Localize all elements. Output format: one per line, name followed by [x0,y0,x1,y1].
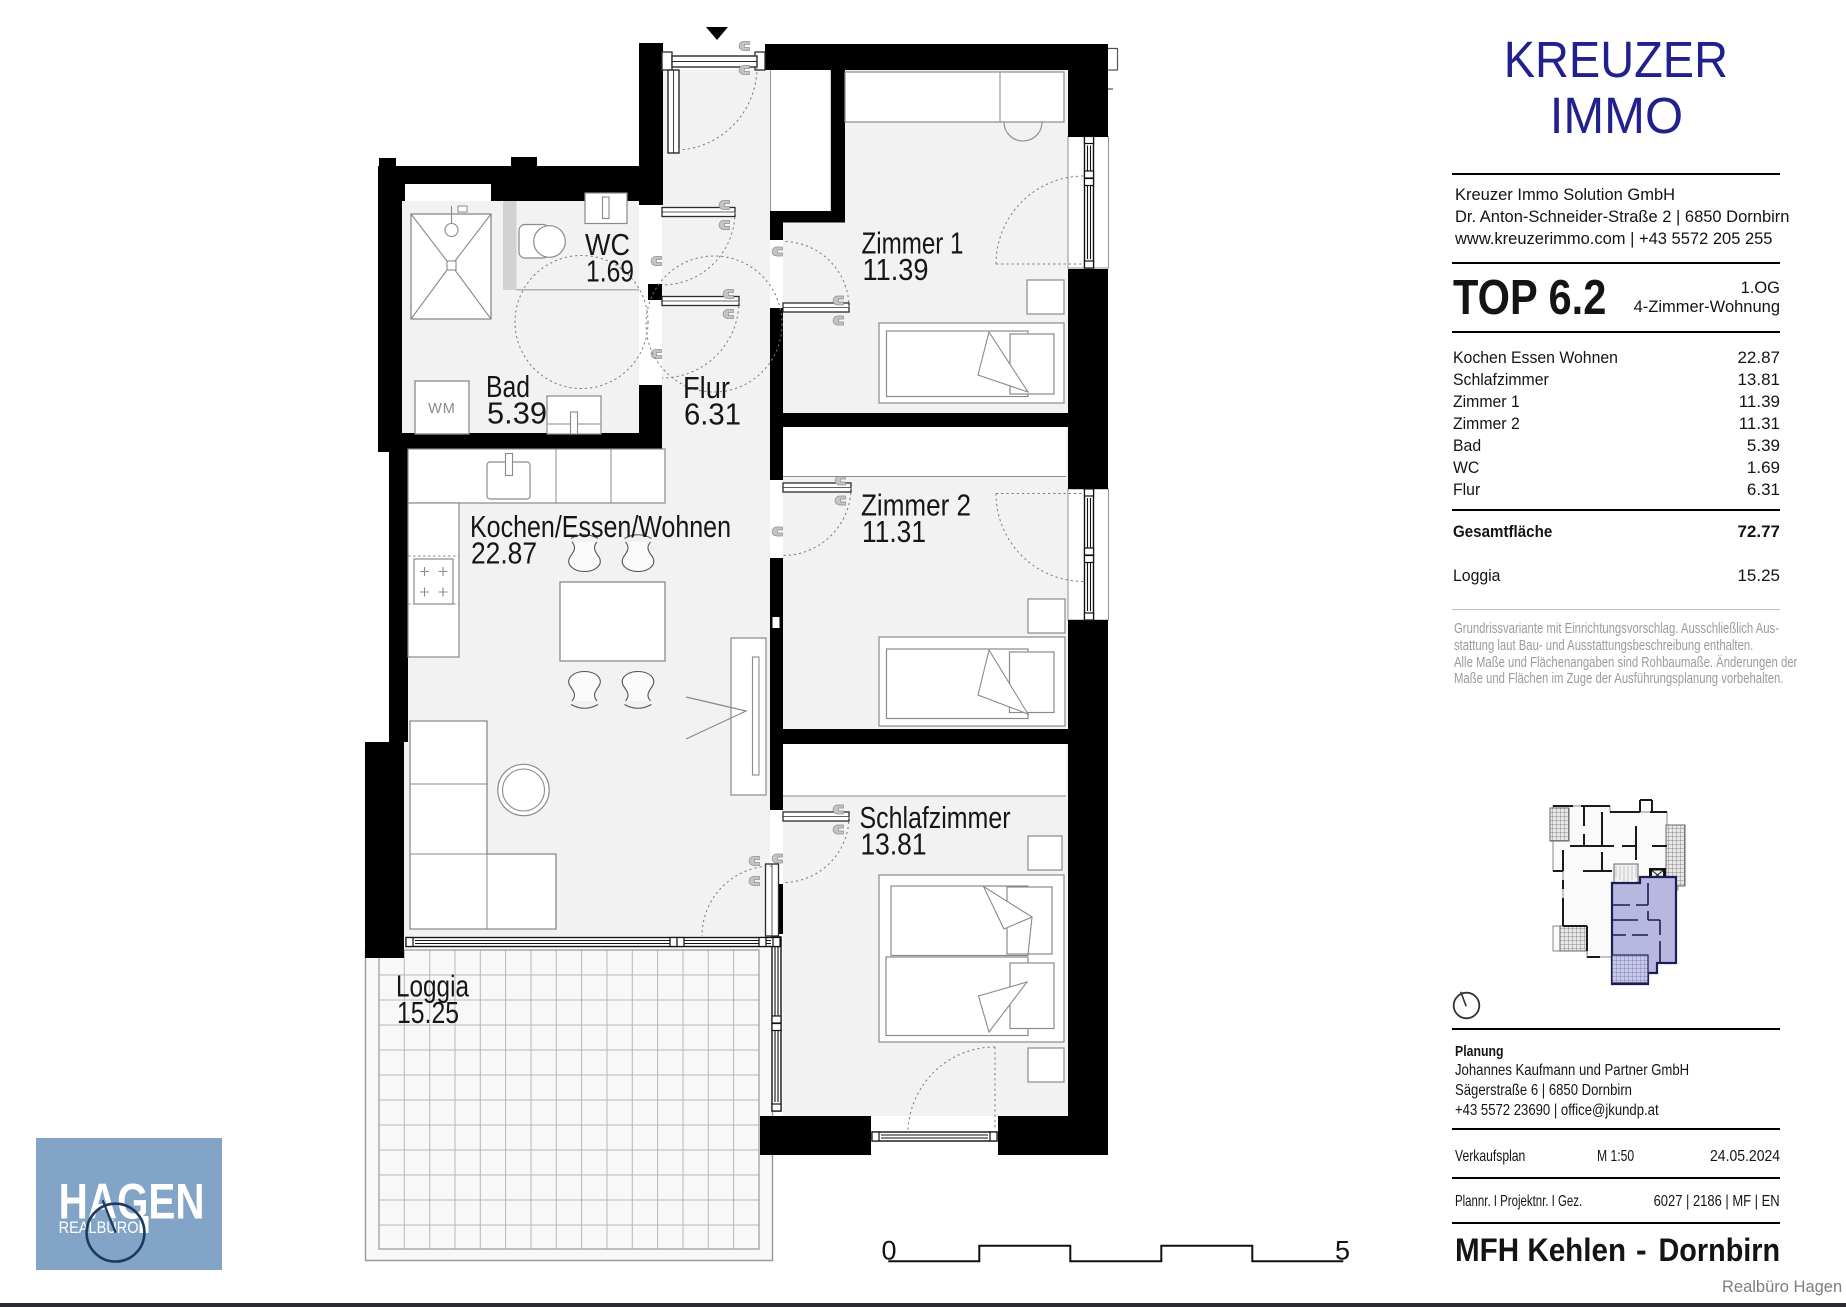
svg-text:22.87: 22.87 [471,537,537,571]
svg-text:5.39: 5.39 [487,397,547,431]
svg-text:1.69: 1.69 [586,255,634,289]
svg-text:0: 0 [881,1236,896,1266]
svg-text:6.31: 6.31 [684,398,741,432]
svg-text:11.31: 11.31 [862,515,926,549]
svg-text:5: 5 [1335,1236,1350,1266]
svg-text:15.25: 15.25 [397,996,459,1030]
svg-text:13.81: 13.81 [861,828,927,862]
svg-text:11.39: 11.39 [863,253,929,287]
svg-text:REALBÜRO: REALBÜRO [59,1219,139,1237]
svg-text:WM: WM [428,401,456,417]
